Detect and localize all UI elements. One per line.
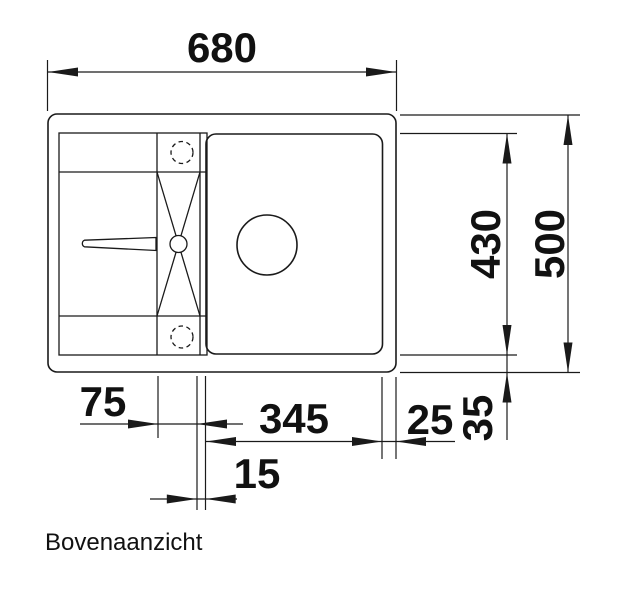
dim-value-right-margin: 25 [407,396,454,443]
arrow-left-icon [206,495,236,504]
arrow-up-icon [564,115,573,145]
tap-hole-top-icon [171,142,193,164]
dim-overall-width: 680 [48,24,397,111]
dim-value-groove-section: 75 [80,378,127,425]
arrow-right-icon [167,495,197,504]
dim-value-inner-depth: 430 [462,209,509,279]
drainboard-groove [82,238,156,251]
technical-drawing-canvas: 680 430 500 35 75 [0,0,630,600]
dim-value-bottom-margin: 35 [454,395,501,442]
arrow-right-icon [352,437,382,446]
dim-bottom-margin: 35 [454,373,512,442]
sink-top-view-drawing: 680 430 500 35 75 [0,0,630,600]
arrow-up-icon [503,373,512,403]
arrow-up-icon [503,134,512,164]
arrow-right-icon [366,68,396,77]
arrow-down-icon [564,343,573,373]
main-bowl [206,134,383,354]
dim-value-bowl-width: 345 [259,395,329,442]
dim-groove-section: 75 [80,376,243,438]
tap-hole-bottom-icon [171,326,193,348]
arrow-left-icon [48,68,78,77]
dim-value-overall-width: 680 [187,24,257,71]
sink-outer-rim [48,114,396,372]
cross-center-knob [170,236,187,253]
arrow-down-icon [503,325,512,355]
arrow-left-icon [197,420,227,429]
arrow-left-icon [206,437,236,446]
dim-divider-width: 15 [150,450,280,504]
view-label: Bovenaanzicht [45,529,203,556]
arrow-right-icon [128,420,158,429]
dim-value-divider-width: 15 [234,450,281,497]
dim-inner-depth: 430 [400,134,517,441]
dim-value-overall-depth: 500 [526,209,573,279]
sink-outline [48,114,396,372]
bowl-drain-hole [237,215,297,275]
